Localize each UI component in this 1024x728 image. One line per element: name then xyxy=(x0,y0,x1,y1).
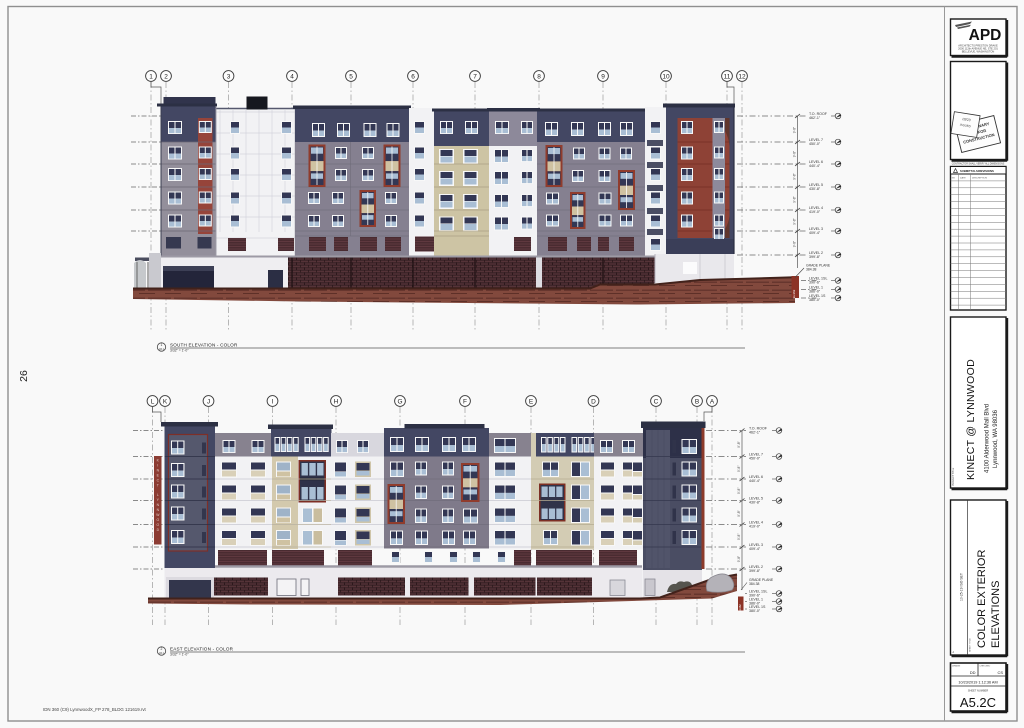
svg-text:T.O. ROOF: T.O. ROOF xyxy=(809,112,828,116)
svg-text:LEVEL 1S: LEVEL 1S xyxy=(809,294,826,298)
svg-text:EL362: EL362 xyxy=(738,604,742,612)
svg-text:9'-8": 9'-8" xyxy=(737,441,741,447)
svg-text:4: 4 xyxy=(290,73,294,80)
svg-text:409'-4": 409'-4" xyxy=(809,231,821,235)
svg-text:LEVEL 3: LEVEL 3 xyxy=(749,543,763,547)
svg-text:SOUTH ELEVATION - COLOR: SOUTH ELEVATION - COLOR xyxy=(170,343,238,348)
svg-text:C: C xyxy=(654,398,659,405)
svg-text:9'-8": 9'-8" xyxy=(793,196,797,202)
svg-text:380'-0": 380'-0" xyxy=(749,609,761,613)
svg-text:450'-0": 450'-0" xyxy=(749,457,761,461)
svg-text:ELEVATIONS: ELEVATIONS xyxy=(990,581,1002,648)
svg-text:3/32" = 1'-0": 3/32" = 1'-0" xyxy=(170,349,189,353)
svg-text:430'-8": 430'-8" xyxy=(809,187,821,191)
svg-text:IDN 360 (C9) LynnwoodX_FP 278_: IDN 360 (C9) LynnwoodX_FP 278_BLDG 12161… xyxy=(43,707,147,712)
svg-text:LEVEL 7: LEVEL 7 xyxy=(809,138,823,142)
svg-text:J: J xyxy=(207,398,210,405)
svg-text:LEVEL 3: LEVEL 3 xyxy=(809,227,823,231)
svg-text:419'-0": 419'-0" xyxy=(809,210,821,214)
svg-text:430'-8": 430'-8" xyxy=(749,501,761,505)
svg-text:Lynnwood, WA 98036: Lynnwood, WA 98036 xyxy=(993,409,999,468)
svg-text:CHECKED: CHECKED xyxy=(980,666,991,668)
svg-text:10-25-19 ISO SET: 10-25-19 ISO SET xyxy=(960,573,964,601)
svg-text:L: L xyxy=(151,398,155,405)
svg-text:9: 9 xyxy=(601,73,605,80)
svg-text:9'-8": 9'-8" xyxy=(793,241,797,247)
svg-text:26: 26 xyxy=(18,370,30,382)
svg-text:A5.2C: A5.2C xyxy=(960,695,996,710)
svg-text:KINECT @ LYNNWOOD: KINECT @ LYNNWOOD xyxy=(965,359,977,480)
svg-text:9'-8": 9'-8" xyxy=(737,510,741,516)
svg-text:2: 2 xyxy=(164,73,168,80)
svg-text:390'-6": 390'-6" xyxy=(809,281,821,285)
svg-text:K: K xyxy=(163,398,168,405)
svg-text:H: H xyxy=(334,398,339,405)
svg-text:COLOR EXTERIOR: COLOR EXTERIOR xyxy=(976,550,988,648)
svg-text:LEVEL 5: LEVEL 5 xyxy=(749,496,763,500)
svg-text:409'-4": 409'-4" xyxy=(749,547,761,551)
svg-text:A5.1: A5.1 xyxy=(159,652,165,655)
svg-text:DATE: DATE xyxy=(960,176,966,179)
svg-text:O: O xyxy=(156,518,159,522)
svg-text:440'-4": 440'-4" xyxy=(749,479,761,483)
svg-text:399'-8": 399'-8" xyxy=(809,255,821,259)
svg-text:O: O xyxy=(156,523,159,527)
svg-text:399'-8": 399'-8" xyxy=(749,569,761,573)
svg-text:F: F xyxy=(463,398,467,405)
svg-text:LEVEL 1: LEVEL 1 xyxy=(809,285,823,289)
svg-text:EAST ELEVATION - COLOR: EAST ELEVATION - COLOR xyxy=(170,647,234,652)
svg-text:440'-4": 440'-4" xyxy=(809,164,821,168)
svg-text:DRAWN: DRAWN xyxy=(952,665,961,668)
svg-text:380'-0": 380'-0" xyxy=(809,298,821,302)
svg-text:462'-1": 462'-1" xyxy=(749,431,761,435)
svg-text:PROJECT TITLE: PROJECT TITLE xyxy=(952,467,955,486)
svg-text:384.38: 384.38 xyxy=(749,582,759,586)
svg-text:LEVEL 1SL: LEVEL 1SL xyxy=(749,589,767,593)
svg-text:T.O. ROOF: T.O. ROOF xyxy=(749,426,768,430)
svg-text:DESCRIPTION: DESCRIPTION xyxy=(972,177,987,179)
svg-text:LEVEL 4: LEVEL 4 xyxy=(809,206,823,210)
svg-text:9'-8": 9'-8" xyxy=(737,534,741,540)
svg-text:1: 1 xyxy=(149,73,153,80)
svg-text:9'-8": 9'-8" xyxy=(737,556,741,562)
svg-text:1: 1 xyxy=(161,343,163,347)
svg-text:9'-8": 9'-8" xyxy=(737,466,741,472)
svg-text:LEVEL 2: LEVEL 2 xyxy=(749,565,763,569)
svg-text:10/23/2019 1:12:36 AM: 10/23/2019 1:12:36 AM xyxy=(958,681,997,685)
svg-text:A5.1: A5.1 xyxy=(159,348,165,351)
svg-text:6: 6 xyxy=(411,73,415,80)
svg-text:D: D xyxy=(591,398,596,405)
svg-text:9'-8": 9'-8" xyxy=(793,173,797,179)
svg-text:419'-0": 419'-0" xyxy=(749,525,761,529)
svg-text:LEVEL 7: LEVEL 7 xyxy=(749,452,763,456)
svg-text:LEVEL 4: LEVEL 4 xyxy=(749,520,763,524)
svg-text:SHEET TITLE: SHEET TITLE xyxy=(970,638,972,652)
svg-text:12: 12 xyxy=(738,73,746,80)
svg-text:2: 2 xyxy=(161,647,163,651)
svg-text:SUBMITTALS/REVISIONS: SUBMITTALS/REVISIONS xyxy=(960,169,994,173)
svg-text:450'-0": 450'-0" xyxy=(809,142,821,146)
svg-text:LEVEL 1: LEVEL 1 xyxy=(749,597,763,601)
svg-text:NO: NO xyxy=(952,177,956,179)
svg-text:3: 3 xyxy=(227,73,231,80)
svg-text:I: I xyxy=(272,398,274,405)
svg-text:B: B xyxy=(695,398,699,405)
svg-text:3/32" = 1'-0": 3/32" = 1'-0" xyxy=(170,653,189,657)
svg-text:9'-8": 9'-8" xyxy=(793,218,797,224)
svg-text:384.38: 384.38 xyxy=(806,268,816,272)
svg-text:LEVEL 6: LEVEL 6 xyxy=(749,475,763,479)
svg-text:LEVEL 5: LEVEL 5 xyxy=(809,183,823,187)
svg-text:CS: CS xyxy=(997,670,1003,675)
svg-text:L: L xyxy=(157,493,159,497)
svg-text:SHEET NUMBER: SHEET NUMBER xyxy=(968,689,989,693)
svg-text:EL362: EL362 xyxy=(792,289,796,298)
svg-text:CONTRACTOR SHALL VERIFY ALL DI: CONTRACTOR SHALL VERIFY ALL DIMENSIONS xyxy=(952,163,1005,166)
svg-text:LEVEL 1S: LEVEL 1S xyxy=(749,605,766,609)
svg-text:9'-8": 9'-8" xyxy=(793,151,797,157)
svg-text:9'-8": 9'-8" xyxy=(793,127,797,133)
svg-text:9'-8": 9'-8" xyxy=(737,488,741,494)
svg-text:4100 Alderwood Mall Blvd: 4100 Alderwood Mall Blvd xyxy=(985,404,991,473)
svg-text:LEVEL 2: LEVEL 2 xyxy=(809,251,823,255)
svg-text:APD: APD xyxy=(969,27,1002,44)
svg-text:8: 8 xyxy=(537,73,541,80)
svg-text:11: 11 xyxy=(724,73,731,80)
svg-text:BELLEVUE, WASHINGTON: BELLEVUE, WASHINGTON xyxy=(962,50,995,54)
svg-text:5: 5 xyxy=(349,73,353,80)
svg-text:I: I xyxy=(157,464,158,468)
svg-text:E: E xyxy=(529,398,534,405)
svg-text:DD: DD xyxy=(970,670,976,675)
svg-text:462'-1": 462'-1" xyxy=(809,116,821,120)
svg-text:A: A xyxy=(710,398,715,405)
svg-text:10: 10 xyxy=(662,73,670,80)
svg-text:LEVEL 1SL: LEVEL 1SL xyxy=(809,276,827,280)
svg-text:LEVEL 6: LEVEL 6 xyxy=(809,160,823,164)
svg-text:G: G xyxy=(397,398,402,405)
svg-text:7: 7 xyxy=(473,73,477,80)
svg-text:T: T xyxy=(157,484,159,488)
